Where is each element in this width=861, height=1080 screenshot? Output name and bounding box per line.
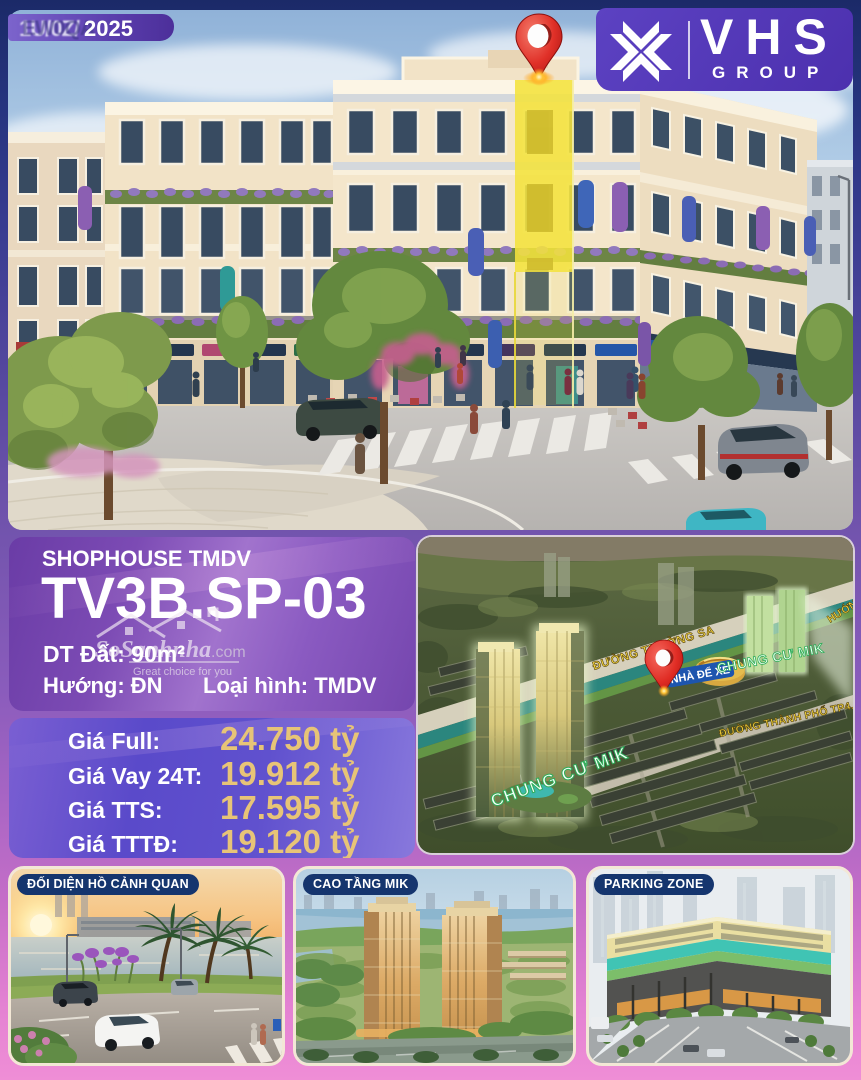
svg-text:.com: .com	[211, 644, 246, 661]
